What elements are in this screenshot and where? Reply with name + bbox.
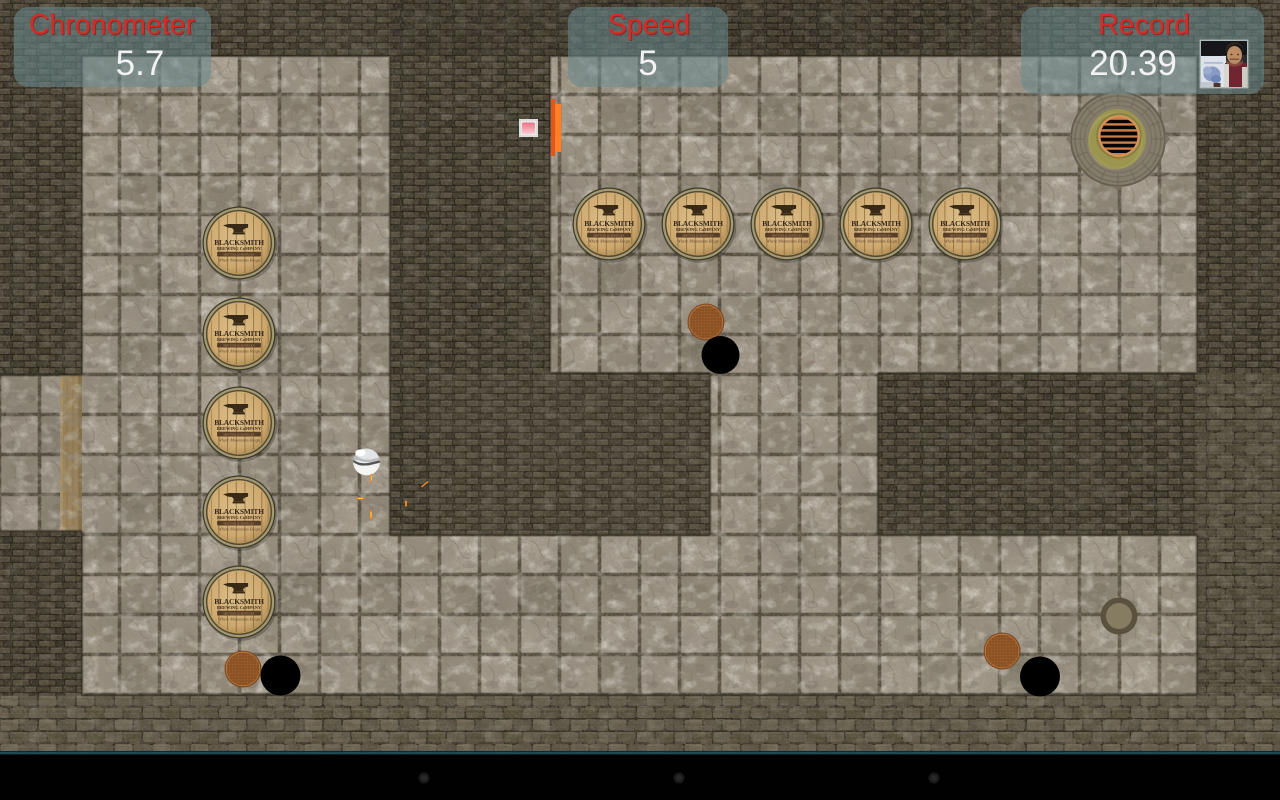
svg-text:20.39: 20.39 (1089, 44, 1177, 83)
svg-text:5.7: 5.7 (116, 44, 165, 83)
svg-text:Record: Record (1098, 9, 1190, 41)
svg-text:Speed: Speed (608, 9, 690, 41)
svg-text:Chronometer: Chronometer (29, 9, 196, 41)
svg-text:5: 5 (638, 44, 657, 83)
